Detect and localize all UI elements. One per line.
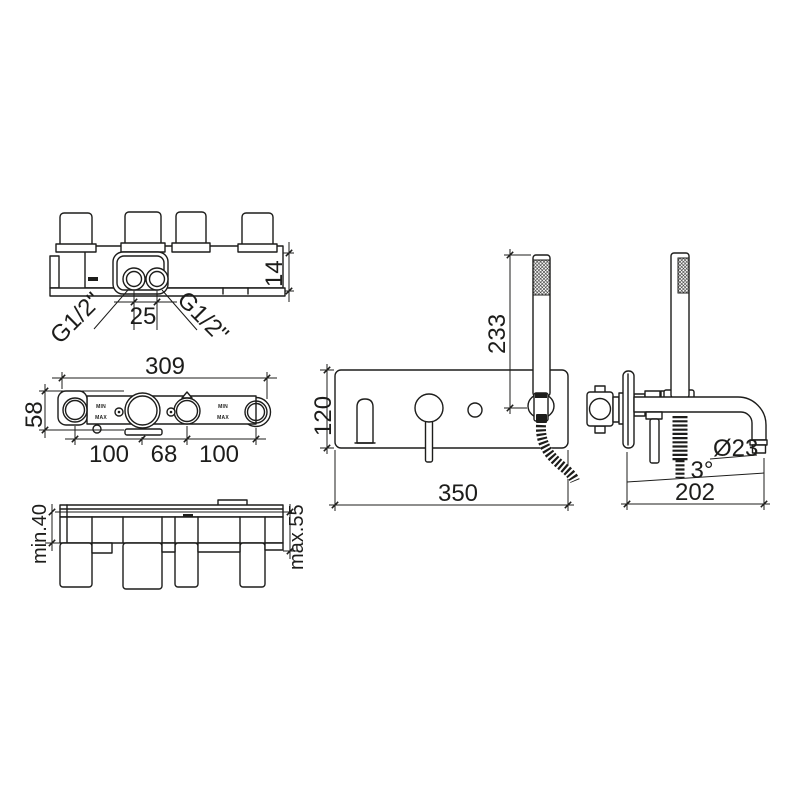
front-view-rough-body: MIN MAX MIN MAX 309 58 xyxy=(21,353,277,468)
dim-202-label: 202 xyxy=(675,479,715,506)
dim-100-left-label: 100 xyxy=(89,441,129,468)
spray-face-hatch-side xyxy=(678,258,689,293)
min-depth-label: min.40 xyxy=(29,504,51,564)
dim-plate-height: 120 xyxy=(310,364,337,454)
dim-25-label: 25 xyxy=(130,303,157,330)
bath-mixer-technical-drawing: 25 G1/2" G1/2" 14 xyxy=(0,0,800,800)
handshower-front xyxy=(528,255,554,423)
diverter-button xyxy=(468,403,482,417)
top-view-rough-body: 25 G1/2" G1/2" 14 xyxy=(45,212,294,349)
max-depth-label: max.55 xyxy=(286,504,308,570)
dim-14-label: 14 xyxy=(261,260,288,287)
min-marker-left: MIN xyxy=(96,404,106,410)
max-marker-left: MAX xyxy=(95,415,107,421)
spout-opening xyxy=(355,399,375,443)
technical-drawing-sheet: 25 G1/2" G1/2" 14 xyxy=(0,0,800,800)
dim-350-label: 350 xyxy=(438,480,478,507)
dim-max-depth: max.55 xyxy=(283,504,308,570)
handshower-side xyxy=(671,253,689,398)
dim-plate-width: 350 xyxy=(329,450,574,511)
dim-233-label: 233 xyxy=(484,314,511,354)
depth-view-rough-body: min.40 max.55 xyxy=(29,500,308,589)
dim-overall-width: 309 xyxy=(52,353,277,399)
dim-100-right-label: 100 xyxy=(199,441,239,468)
dim-d23-label: Ø23 xyxy=(713,435,758,462)
side-handle-assembly xyxy=(587,386,624,433)
max-marker-right: MAX xyxy=(217,415,229,421)
side-view-trim: Ø23 3° 202 xyxy=(587,253,770,510)
inlet-boss xyxy=(113,252,168,294)
side-lever xyxy=(646,412,662,463)
dim-spout-diameter: Ø23 xyxy=(710,435,758,462)
dim-309-label: 309 xyxy=(145,353,185,380)
min-marker-right: MIN xyxy=(218,404,228,410)
front-view-trim: 120 350 233 xyxy=(310,249,575,511)
dim-58-label: 58 xyxy=(21,401,48,428)
dim-120-label: 120 xyxy=(310,396,337,436)
dim-68-label: 68 xyxy=(151,441,178,468)
spray-face-hatch xyxy=(533,260,550,295)
